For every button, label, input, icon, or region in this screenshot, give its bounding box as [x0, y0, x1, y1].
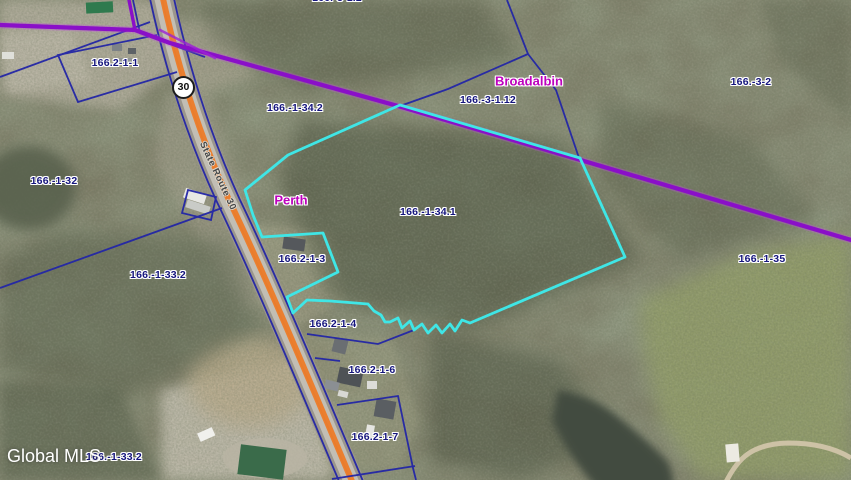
- aerial-imagery: [0, 0, 851, 480]
- tree-speckle-light: [0, 0, 851, 480]
- parcel-map[interactable]: 166.2-1-1 166.-1-32 166.-1-33.2 166.-1-3…: [0, 0, 851, 480]
